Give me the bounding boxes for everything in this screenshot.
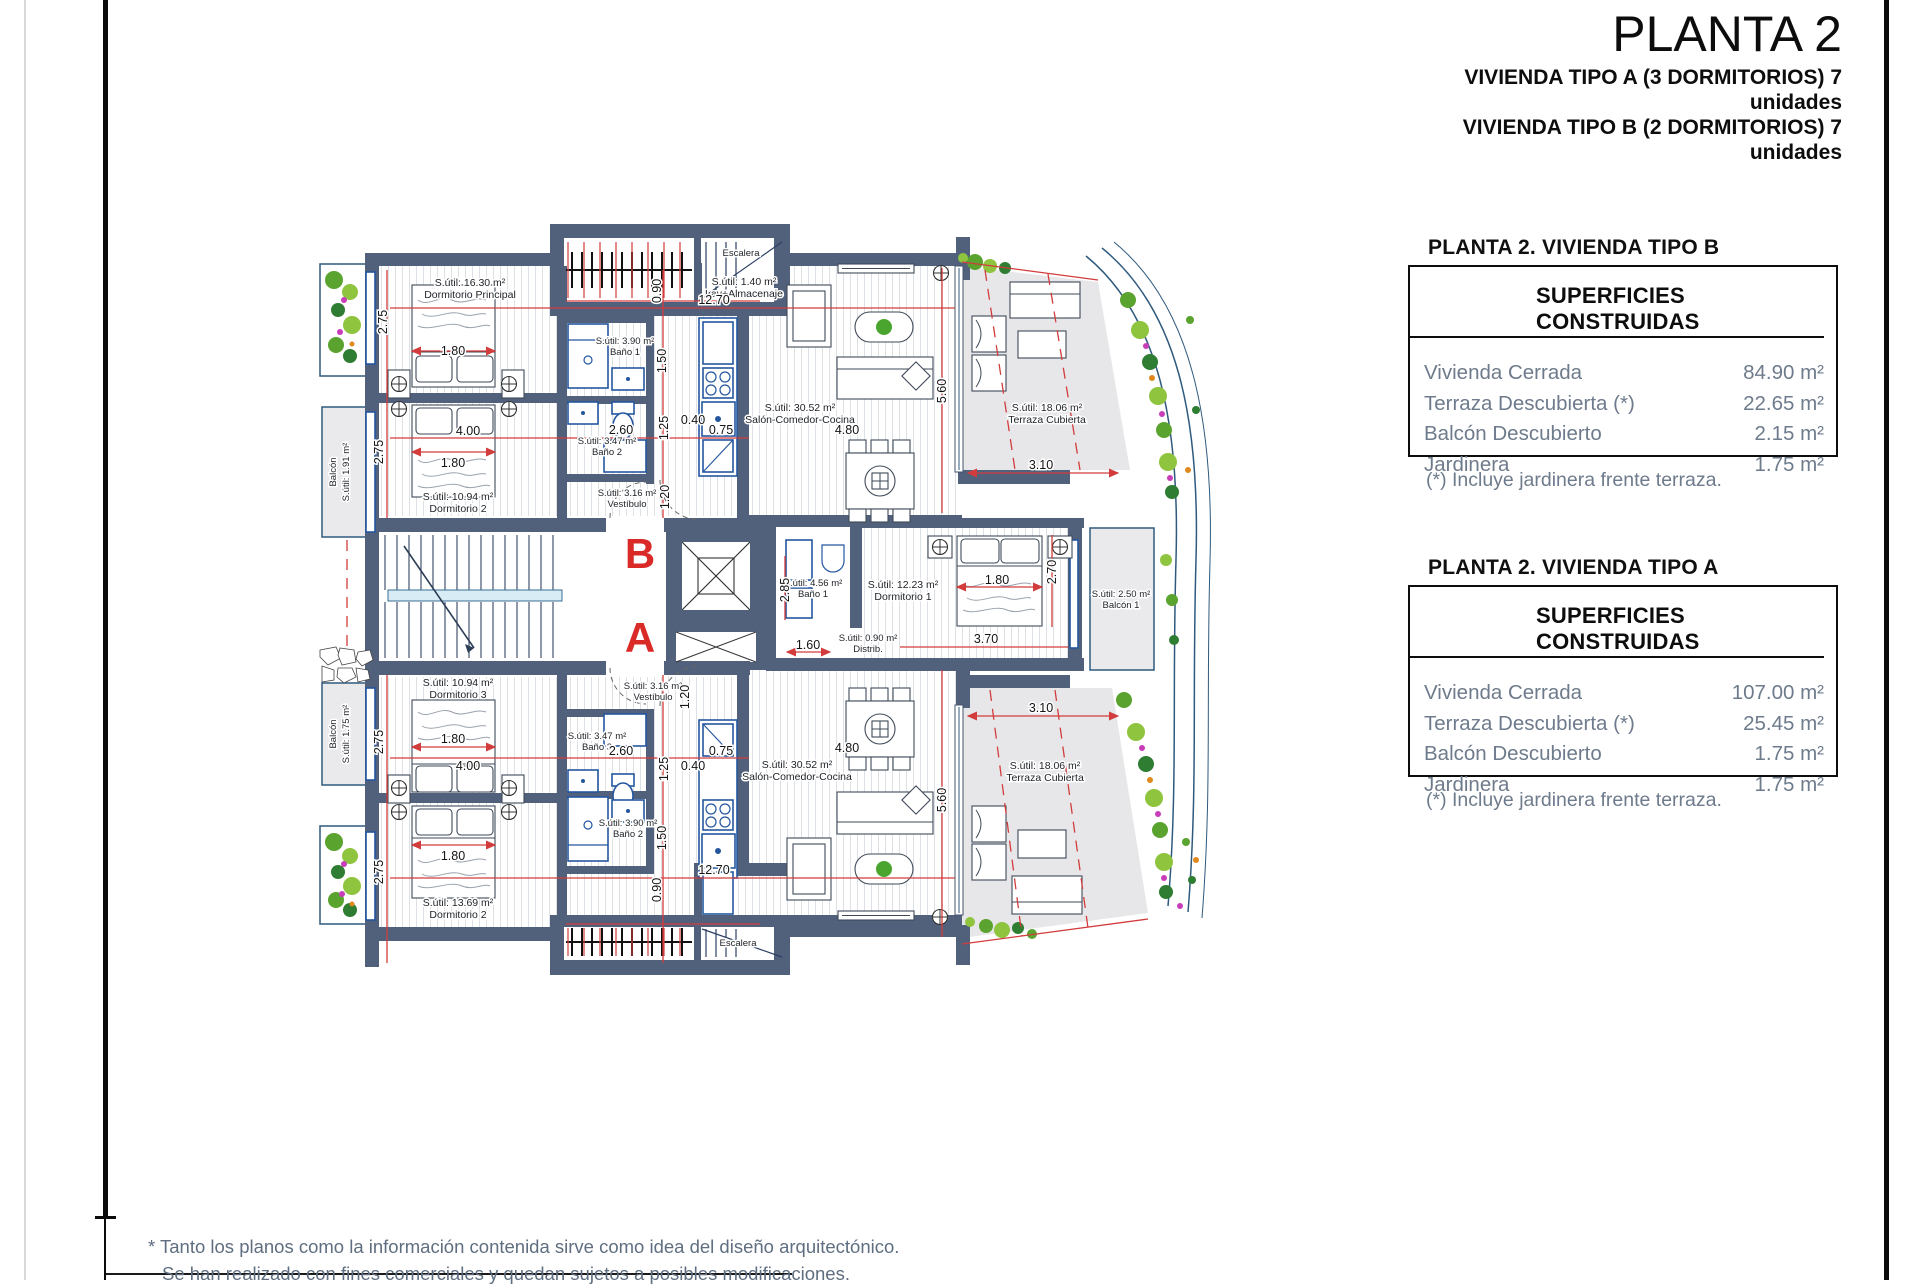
row-value: 22.65 m² — [1743, 389, 1824, 420]
room-label: Dormitorio Principal — [424, 289, 516, 301]
dimension-label: 1.50 — [655, 826, 669, 850]
room-label: S.útil: 1.91 m² — [341, 443, 352, 502]
room-label: Balcón 1 — [1103, 600, 1140, 611]
dimension-label: 3.10 — [1029, 458, 1053, 472]
surface-table-tipo-b: PLANTA 2. VIVIENDA TIPO B SUPERFICIES CO… — [1408, 236, 1838, 492]
room-label: S.útil: 3.16 m² — [624, 681, 683, 692]
dimension-label: 0.90 — [650, 279, 664, 303]
dimension-label: 4.00 — [456, 759, 480, 773]
dimension-label: 0.75 — [709, 744, 733, 758]
row-value: 107.00 m² — [1732, 678, 1824, 709]
table-row: Vivienda Cerrada107.00 m² — [1424, 678, 1824, 709]
table-a-title: SUPERFICIES CONSTRUIDAS — [1528, 603, 1824, 658]
room-label: Dormitorio 2 — [429, 503, 486, 515]
dimension-label: 1.25 — [657, 757, 671, 781]
dimension-label: 2.85 — [778, 578, 792, 602]
table-b-heading: PLANTA 2. VIVIENDA TIPO B — [1408, 236, 1838, 260]
dimension-label: 0.75 — [709, 423, 733, 437]
unit-letter-b: B — [625, 530, 655, 577]
footer-line1: * Tanto los planos como la información c… — [148, 1234, 899, 1261]
room-label: S.útil: 3.47 m² — [568, 731, 627, 742]
table-a-heading: PLANTA 2. VIVIENDA TIPO A — [1408, 556, 1838, 580]
dimension-label: 12.70 — [698, 293, 729, 307]
room-label: S.útil: 0.90 m² — [839, 633, 898, 644]
dimension-label: 1.80 — [441, 849, 465, 863]
stairs — [385, 535, 562, 658]
room-label: S.útil: 13.69 m² — [423, 897, 494, 909]
table-b-leadline — [1410, 336, 1528, 339]
table-a-box: SUPERFICIES CONSTRUIDAS Vivienda Cerrada… — [1408, 585, 1838, 777]
room-label: S.útil: 12.23 m² — [868, 579, 939, 591]
footer-line2: Se han realizado con fines comerciales y… — [148, 1261, 899, 1288]
page-title: PLANTA 2 — [1408, 8, 1842, 61]
dimension-label: 2.75 — [376, 310, 390, 334]
room-label: Vestíbulo — [633, 692, 672, 703]
table-row: Terraza Descubierta (*)25.45 m² — [1424, 709, 1824, 740]
room-label: S.útil: 18.06 m² — [1012, 402, 1083, 414]
room-label: S.útil: 4.56 m² — [784, 578, 843, 589]
title-block: PLANTA 2 VIVIENDA TIPO A (3 DORMITORIOS)… — [1408, 8, 1844, 165]
subtitle-tipo-b: VIVIENDA TIPO B (2 DORMITORIOS) 7 unidad… — [1408, 115, 1842, 165]
dimension-label: 2.60 — [609, 744, 633, 758]
room-label: S.útil: 16.30 m² — [435, 277, 506, 289]
dimension-label: 1.50 — [655, 349, 669, 373]
dimension-label: 0.40 — [681, 413, 705, 427]
dimension-label: 4.00 — [456, 424, 480, 438]
room-label: Dormitorio 3 — [429, 689, 486, 701]
dimension-label: 2.70 — [1045, 560, 1059, 584]
dimension-label: 0.40 — [681, 759, 705, 773]
table-row: Vivienda Cerrada84.90 m² — [1424, 358, 1824, 389]
dimension-label: 1.80 — [441, 732, 465, 746]
room-label: Distrib. — [853, 644, 883, 655]
unit-letter-a: A — [625, 614, 655, 661]
room-label: Baño 3 — [582, 742, 612, 753]
dimension-label: 2.75 — [372, 730, 386, 754]
dimension-label: 1.20 — [658, 485, 672, 509]
room-label: S.útil: 30.52 m² — [762, 759, 833, 771]
row-label: Terraza Descubierta (*) — [1424, 709, 1635, 740]
dimension-label: 1.20 — [678, 685, 692, 709]
row-label: Vivienda Cerrada — [1424, 358, 1582, 389]
subtitle-tipo-a: VIVIENDA TIPO A (3 DORMITORIOS) 7 unidad… — [1408, 65, 1842, 115]
room-label: S.útil: 10.94 m² — [423, 491, 494, 503]
table-a-leadline — [1410, 656, 1528, 659]
row-value: 1.75 m² — [1755, 770, 1825, 801]
room-label: Balcón — [328, 719, 339, 748]
dimension-label: 1.80 — [985, 573, 1009, 587]
dimension-label: 1.80 — [441, 344, 465, 358]
dimension-label: 12.70 — [698, 863, 729, 877]
dimension-label: 1.80 — [441, 456, 465, 470]
room-label: S.útil: 30.52 m² — [765, 402, 836, 414]
dimension-label: 1.25 — [657, 416, 671, 440]
room-label: S.útil: 1.40 m² — [712, 276, 777, 288]
room-label: Salón-Comedor-Cocina — [742, 771, 852, 783]
room-label: S.útil: 18.06 m² — [1010, 760, 1081, 772]
room-label: Dormitorio 1 — [874, 591, 931, 603]
room-label: S.útil: 10.94 m² — [423, 677, 494, 689]
room-label: Baño 2 — [592, 447, 622, 458]
table-a-rows: Vivienda Cerrada107.00 m² Terraza Descub… — [1424, 678, 1824, 800]
room-label: Baño 1 — [798, 589, 828, 600]
table-a-title-row: SUPERFICIES CONSTRUIDAS — [1424, 603, 1824, 658]
sheet-frame-left-lower — [104, 1219, 106, 1280]
room-label: Baño 2 — [613, 829, 643, 840]
room-label: S.útil: 2.50 m² — [1092, 589, 1151, 600]
room-label: Balcón — [328, 457, 339, 486]
dimension-label: 1.60 — [796, 638, 820, 652]
dimension-label: 2.60 — [609, 423, 633, 437]
room-label: S.útil: 3.47 m² — [578, 436, 637, 447]
dimension-label: 0.90 — [650, 878, 664, 902]
row-value: 84.90 m² — [1743, 358, 1824, 389]
row-label: Balcón Descubierto — [1424, 739, 1602, 770]
row-value: 1.75 m² — [1755, 739, 1825, 770]
table-row: Balcón Descubierto2.15 m² — [1424, 419, 1824, 450]
row-label: Terraza Descubierta (*) — [1424, 389, 1635, 420]
room-label: Baño 1 — [610, 347, 640, 358]
dimension-label: 5.60 — [935, 788, 949, 812]
dimension-label: 2.75 — [372, 860, 386, 884]
dimension-label: 3.70 — [974, 632, 998, 646]
room-label: Escalera — [723, 248, 761, 259]
dimension-label: 5.60 — [935, 379, 949, 403]
table-b-rows: Vivienda Cerrada84.90 m² Terraza Descubi… — [1424, 358, 1824, 480]
table-row: Terraza Descubierta (*)22.65 m² — [1424, 389, 1824, 420]
room-label: Vestíbulo — [607, 499, 646, 510]
floor-plan: B A S.útil: 16.30 m² Dormitorio Principa… — [0, 0, 1280, 1060]
room-label: S.útil: 3.90 m² — [596, 336, 655, 347]
dimension-label: 4.80 — [835, 423, 859, 437]
room-label: S.útil: 3.90 m² — [599, 818, 658, 829]
row-value: 1.75 m² — [1755, 450, 1825, 481]
dimension-label: 3.10 — [1029, 701, 1053, 715]
sheet-frame-right — [1884, 0, 1889, 1280]
dimension-label: 2.75 — [372, 440, 386, 464]
room-label: Terraza Cubierta — [1006, 772, 1084, 784]
room-label: S.útil: 1.75 m² — [341, 705, 352, 764]
row-label: Balcón Descubierto — [1424, 419, 1602, 450]
room-label: Escalera — [720, 938, 758, 949]
table-b-title: SUPERFICIES CONSTRUIDAS — [1528, 283, 1824, 338]
table-b-box: SUPERFICIES CONSTRUIDAS Vivienda Cerrada… — [1408, 265, 1838, 457]
table-row: Balcón Descubierto1.75 m² — [1424, 739, 1824, 770]
room-label: Dormitorio 2 — [429, 909, 486, 921]
table-b-title-row: SUPERFICIES CONSTRUIDAS — [1424, 283, 1824, 338]
dimension-label: 4.80 — [835, 741, 859, 755]
room-label: S.útil: 3.16 m² — [598, 488, 657, 499]
room-label: Terraza Cubierta — [1008, 414, 1086, 426]
surface-table-tipo-a: PLANTA 2. VIVIENDA TIPO A SUPERFICIES CO… — [1408, 556, 1838, 812]
row-value: 25.45 m² — [1743, 709, 1824, 740]
row-value: 2.15 m² — [1755, 419, 1825, 450]
row-label: Vivienda Cerrada — [1424, 678, 1582, 709]
